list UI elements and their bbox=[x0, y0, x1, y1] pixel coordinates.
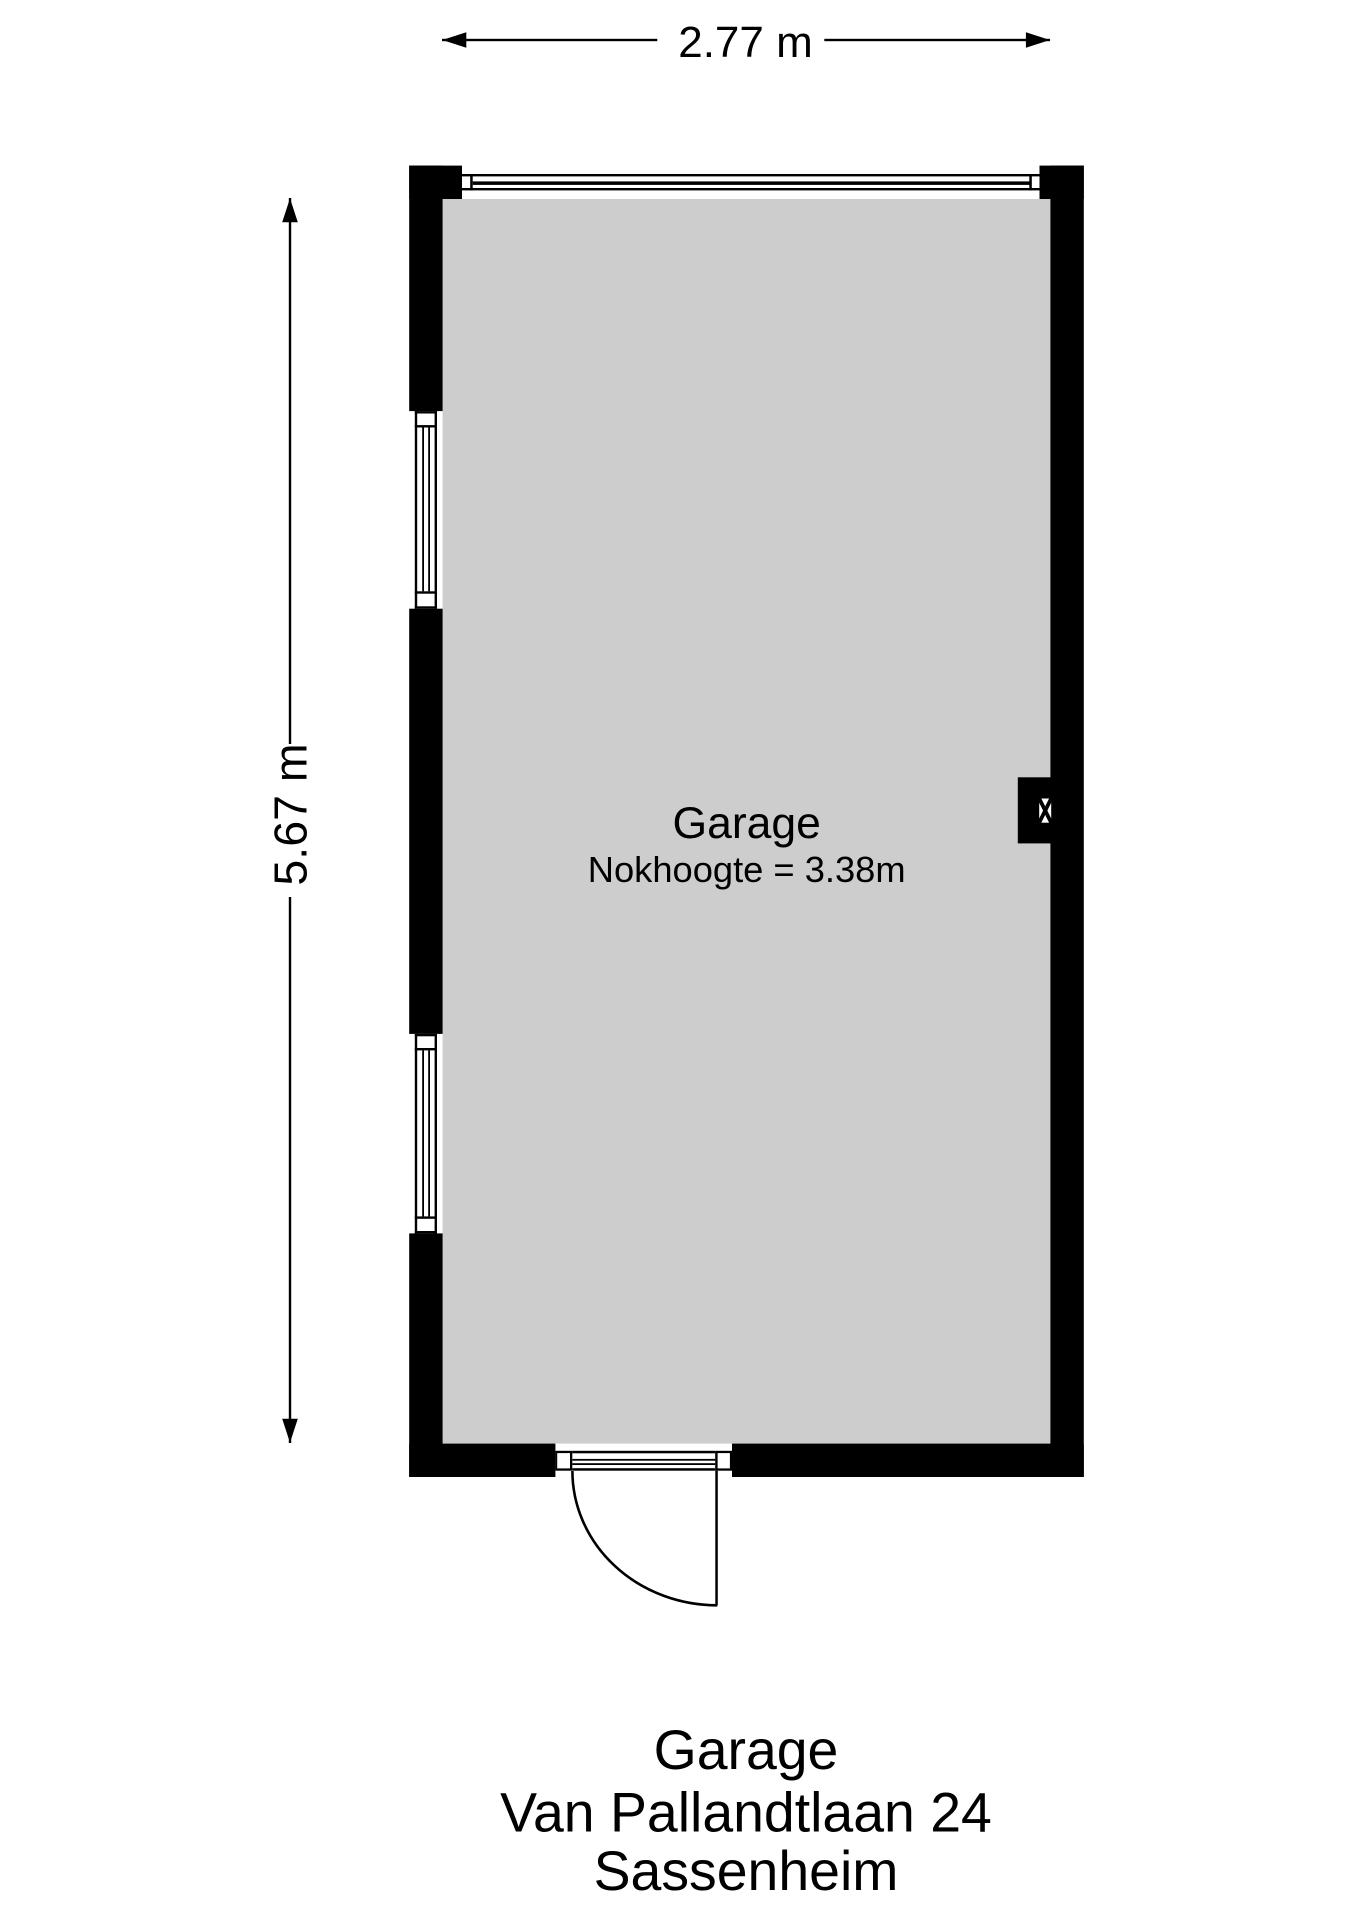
svg-text:Nokhoogte = 3.38m: Nokhoogte = 3.38m bbox=[588, 849, 906, 890]
svg-text:Garage: Garage bbox=[672, 799, 820, 848]
svg-text:Garage: Garage bbox=[654, 1719, 839, 1781]
svg-text:2.77 m: 2.77 m bbox=[678, 18, 813, 67]
svg-text:Van Pallandtlaan 24: Van Pallandtlaan 24 bbox=[500, 1782, 992, 1844]
svg-text:Sassenheim: Sassenheim bbox=[594, 1840, 899, 1902]
svg-text:5.67 m: 5.67 m bbox=[265, 743, 317, 885]
